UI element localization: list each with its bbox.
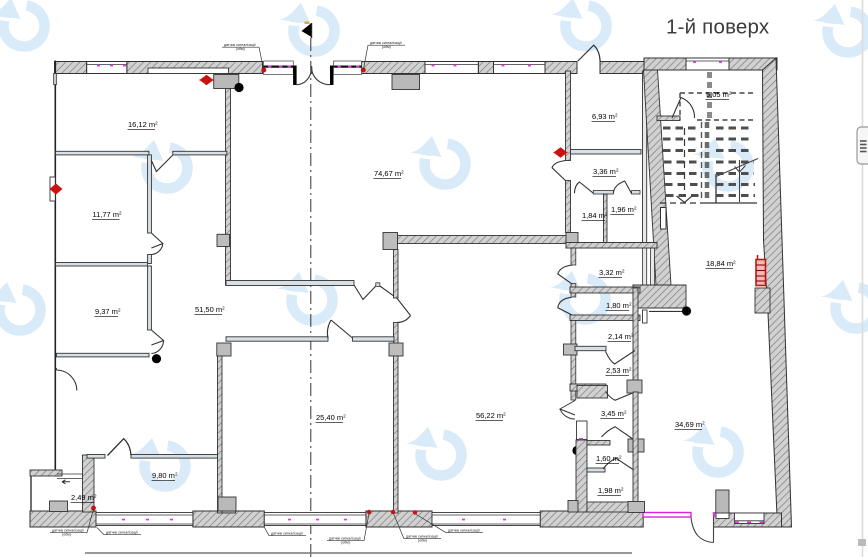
svg-text:34,69 m2: 34,69 m2 bbox=[675, 420, 705, 429]
svg-text:18,84 m2: 18,84 m2 bbox=[706, 259, 736, 268]
svg-text:1,84 m2: 1,84 m2 bbox=[582, 211, 608, 220]
svg-text:2,14 m2: 2,14 m2 bbox=[608, 332, 634, 341]
svg-text:(обм): (обм) bbox=[341, 541, 350, 545]
svg-text:датчик сигналізації: датчик сигналізації bbox=[106, 531, 138, 535]
svg-text:1,80 m2: 1,80 m2 bbox=[606, 301, 632, 310]
svg-text:1,60 m2: 1,60 m2 bbox=[596, 454, 622, 463]
svg-text:74,67 m2: 74,67 m2 bbox=[374, 169, 404, 178]
svg-text:(обм): (обм) bbox=[236, 47, 245, 51]
svg-text:2,49 m2: 2,49 m2 bbox=[71, 493, 97, 502]
svg-text:датчик сигналізації: датчик сигналізації bbox=[271, 532, 303, 536]
svg-text:25,40 m2: 25,40 m2 bbox=[316, 413, 346, 422]
svg-text:2,53 m2: 2,53 m2 bbox=[606, 366, 632, 375]
svg-text:3,36 m2: 3,36 m2 bbox=[593, 167, 619, 176]
svg-text:9,37 m2: 9,37 m2 bbox=[95, 307, 121, 316]
svg-text:3,45 m2: 3,45 m2 bbox=[601, 409, 627, 418]
svg-text:(обм): (обм) bbox=[62, 533, 71, 537]
svg-text:1,96 m2: 1,96 m2 bbox=[611, 205, 637, 214]
svg-text:1-й поверх: 1-й поверх bbox=[666, 16, 770, 39]
svg-text:16,12 m2: 16,12 m2 bbox=[128, 120, 158, 129]
svg-text:6,93 m2: 6,93 m2 bbox=[592, 112, 618, 121]
svg-text:51,50 m2: 51,50 m2 bbox=[195, 305, 225, 314]
svg-text:(обм): (обм) bbox=[418, 539, 427, 543]
svg-text:датчик сигналізації: датчик сигналізації bbox=[448, 529, 480, 533]
svg-text:1,98 m2: 1,98 m2 bbox=[598, 486, 624, 495]
svg-text:3,32 m2: 3,32 m2 bbox=[599, 268, 625, 277]
svg-text:56,22 m2: 56,22 m2 bbox=[476, 411, 506, 420]
svg-text:5,05 m2: 5,05 m2 bbox=[706, 90, 732, 99]
svg-text:9,80 m2: 9,80 m2 bbox=[152, 471, 178, 480]
svg-text:11,77 m2: 11,77 m2 bbox=[93, 210, 123, 219]
svg-text:(обм): (обм) bbox=[382, 45, 391, 49]
